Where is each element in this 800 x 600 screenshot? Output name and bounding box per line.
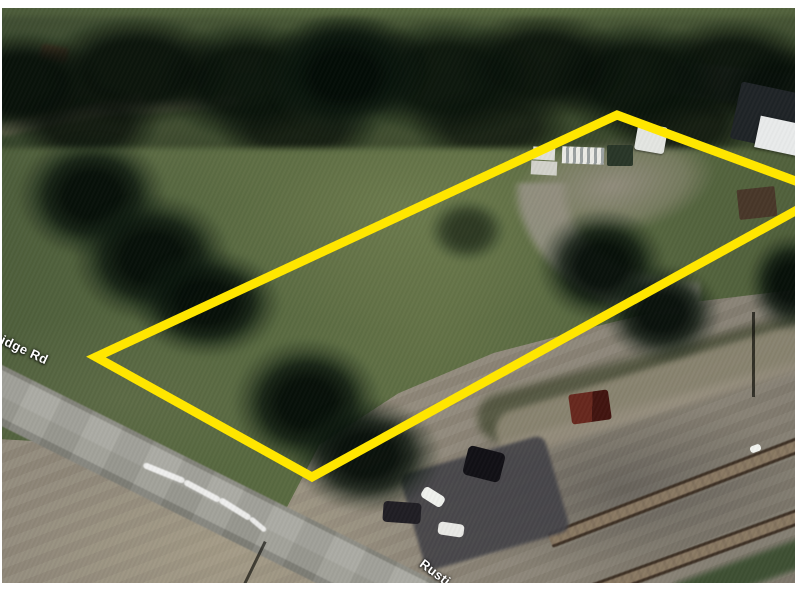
screenshot-root: { "map": { "road_labels": { "left": "rid… [0, 0, 800, 600]
satellite-map: ridge Rd Rusti [2, 8, 795, 583]
parcel-boundary-polygon [96, 115, 795, 477]
parcel-boundary-overlay [2, 8, 795, 583]
